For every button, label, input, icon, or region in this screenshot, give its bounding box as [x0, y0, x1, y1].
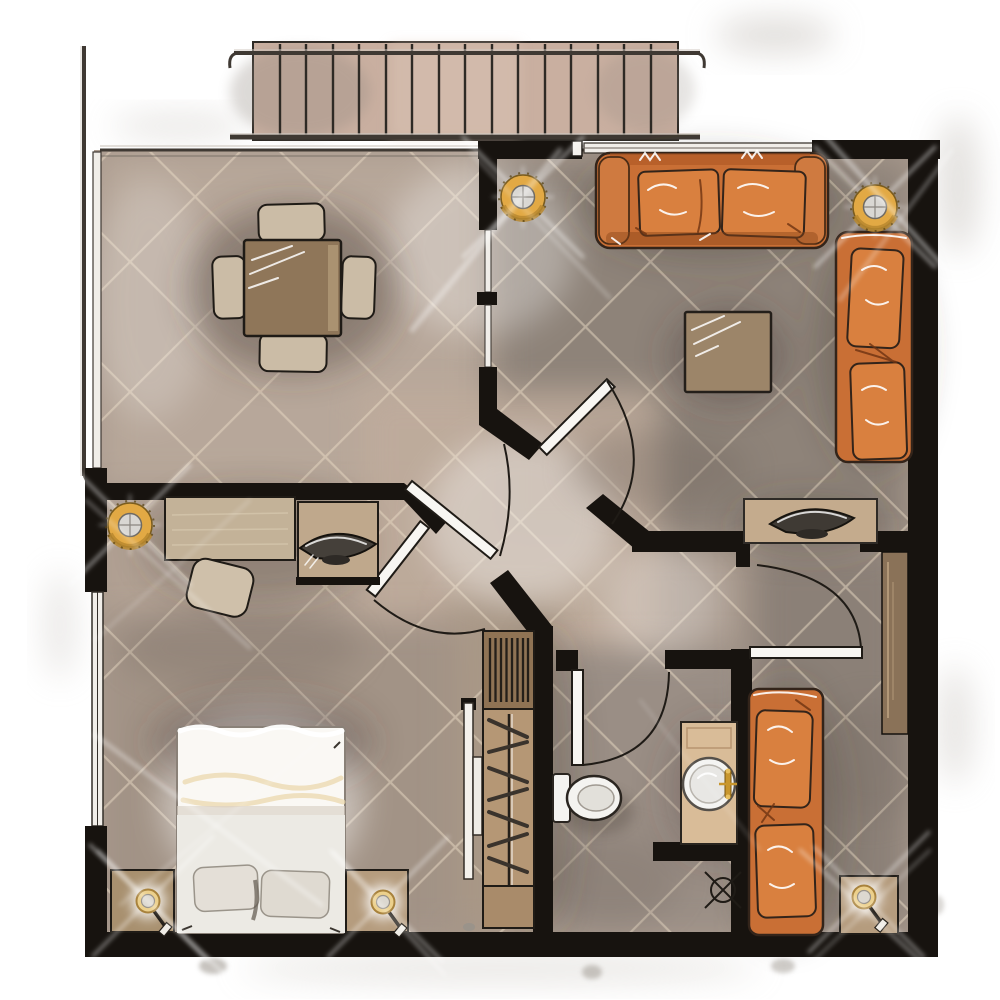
- left-glass-wall: [93, 152, 101, 468]
- door-leaf-wc: [572, 670, 583, 765]
- door-leaf-second-room: [750, 647, 862, 658]
- closet-slider-door: [473, 757, 482, 835]
- dining-chair-left: [212, 256, 247, 319]
- slider-handle: [463, 923, 475, 931]
- tall-cabinet: [882, 552, 908, 734]
- coffee-table: [685, 312, 771, 392]
- floor-plan-image: [0, 0, 1000, 1000]
- closet-slider-door: [464, 703, 473, 879]
- bed-pillow: [193, 865, 259, 912]
- floor-drain-icon: [705, 872, 741, 908]
- chaise-pillow: [847, 248, 904, 349]
- dining-chair-top: [258, 203, 325, 242]
- wardrobe-drawer-box: [483, 886, 534, 928]
- daybed-pillow: [754, 710, 813, 808]
- daybed-pillow: [755, 824, 816, 918]
- chaise-pillow: [850, 362, 907, 460]
- sofa-pillow: [638, 169, 720, 236]
- sofa-arm-left: [599, 157, 629, 244]
- dining-chair-right: [341, 256, 376, 319]
- bed-pillow: [260, 870, 330, 918]
- floor-plan-canvas: [0, 0, 1000, 1000]
- dining-chair-bottom: [259, 333, 327, 372]
- dining-table: [244, 240, 341, 336]
